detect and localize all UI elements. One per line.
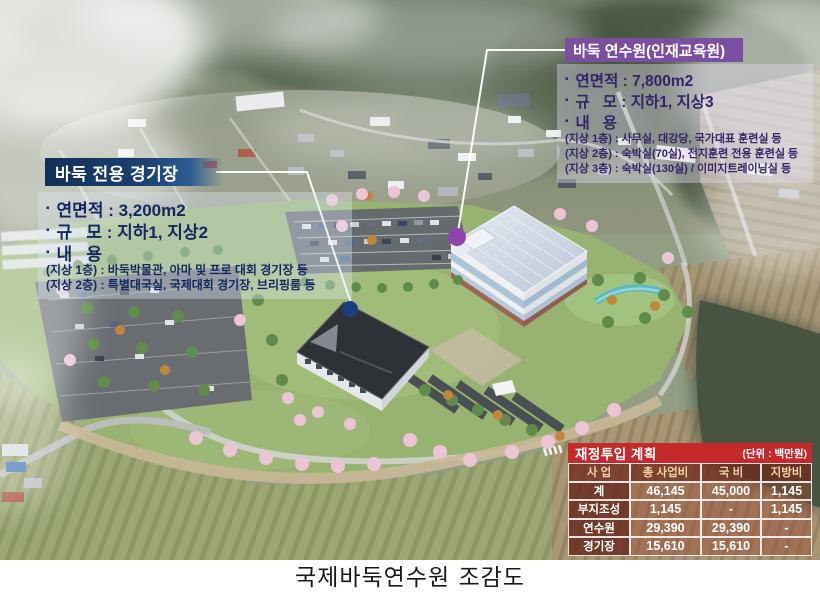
institute-callout-title-text: 바둑 연수원(인재교육원)	[573, 40, 725, 61]
col-header-national: 국 비	[701, 463, 761, 482]
row-total-national: 45,000	[701, 482, 761, 501]
slide: 바둑 전용 경기장 ▪ 연면적 : 3,200m2 ▪ 규 모 : 지하1, 지…	[0, 0, 820, 594]
stadium-item-contents: ▪ 내 용	[46, 241, 344, 263]
col-header-project: 사 업	[568, 463, 630, 482]
row-stadium-label: 경기장	[568, 537, 630, 556]
stadium-item-area: ▪ 연면적 : 3,200m2	[46, 197, 344, 219]
stadium-callout-body: ▪ 연면적 : 3,200m2 ▪ 규 모 : 지하1, 지상2 ▪ 내 용 (…	[38, 192, 352, 299]
institute-item-area: ▪ 연면적 : 7,800m2	[565, 69, 805, 90]
bullet-icon: ▪	[565, 116, 569, 127]
institute-detail-floor1: (지상 1층) : 사무실, 대강당, 국가대표 훈련실 등	[565, 132, 805, 147]
stadium-item-scale: ▪ 규 모 : 지하1, 지상2	[46, 219, 344, 241]
bullet-icon: ▪	[46, 247, 50, 258]
row-institute-national: 29,390	[701, 519, 761, 538]
institute-item-scale: ▪ 규 모 : 지하1, 지상3	[565, 90, 805, 111]
stadium-callout-title-text: 바둑 전용 경기장	[55, 160, 178, 185]
row-total-label: 계	[568, 482, 630, 501]
finance-table-unit: (단위 : 백만원)	[742, 446, 807, 461]
stadium-detail-floor1: (지상 1층) : 바둑박물관, 아마 및 프로 대회 경기장 등	[46, 263, 344, 278]
stadium-callout-title: 바둑 전용 경기장	[45, 158, 223, 186]
row-institute-label: 연수원	[568, 519, 630, 538]
bullet-icon: ▪	[565, 95, 569, 106]
institute-marker-dot	[448, 228, 466, 246]
finance-table: 재정투입 계획 (단위 : 백만원) 사 업 총 사업비 국 비 지방비 계 4…	[568, 443, 812, 556]
row-institute-cost: 29,390	[630, 519, 701, 538]
bullet-icon: ▪	[565, 74, 569, 85]
row-site-local: 1,145	[761, 500, 812, 519]
bullet-icon: ▪	[46, 225, 50, 236]
col-header-total-cost: 총 사업비	[630, 463, 701, 482]
row-total-local: 1,145	[761, 482, 812, 501]
institute-callout-title: 바둑 연수원(인재교육원)	[565, 38, 743, 62]
row-stadium-national: 15,610	[701, 537, 761, 556]
stadium-detail-floor2: (지상 2층) : 특별대국실, 국제대회 경기장, 브리핑룸 등	[46, 278, 344, 293]
row-stadium-local: -	[761, 537, 812, 556]
institute-detail-floor2: (지상 2층) : 숙박실(70실), 전지훈련 전용 훈련실 등	[565, 147, 805, 162]
col-header-local: 지방비	[761, 463, 812, 482]
row-site-label: 부지조성	[568, 500, 630, 519]
finance-table-title-bar: 재정투입 계획 (단위 : 백만원)	[568, 443, 812, 463]
institute-detail-floor3: (지상 3층) : 숙박실(130실) / 이미지트레이닝실 등	[565, 162, 805, 177]
stadium-marker-dot	[342, 301, 358, 317]
institute-callout-body: ▪ 연면적 : 7,800m2 ▪ 규 모 : 지하1, 지상3 ▪ 내 용 (…	[557, 64, 813, 183]
institute-item-contents: ▪ 내 용	[565, 111, 805, 132]
row-institute-local: -	[761, 519, 812, 538]
figure-caption: 국제바둑연수원 조감도	[0, 560, 820, 594]
row-stadium-cost: 15,610	[630, 537, 701, 556]
finance-table-title: 재정투입 계획	[575, 443, 657, 463]
row-site-national: -	[701, 500, 761, 519]
bullet-icon: ▪	[46, 203, 50, 214]
row-site-cost: 1,145	[630, 500, 701, 519]
finance-table-grid: 사 업 총 사업비 국 비 지방비 계 46,145 45,000 1,145 …	[568, 463, 812, 556]
row-total-cost: 46,145	[630, 482, 701, 501]
